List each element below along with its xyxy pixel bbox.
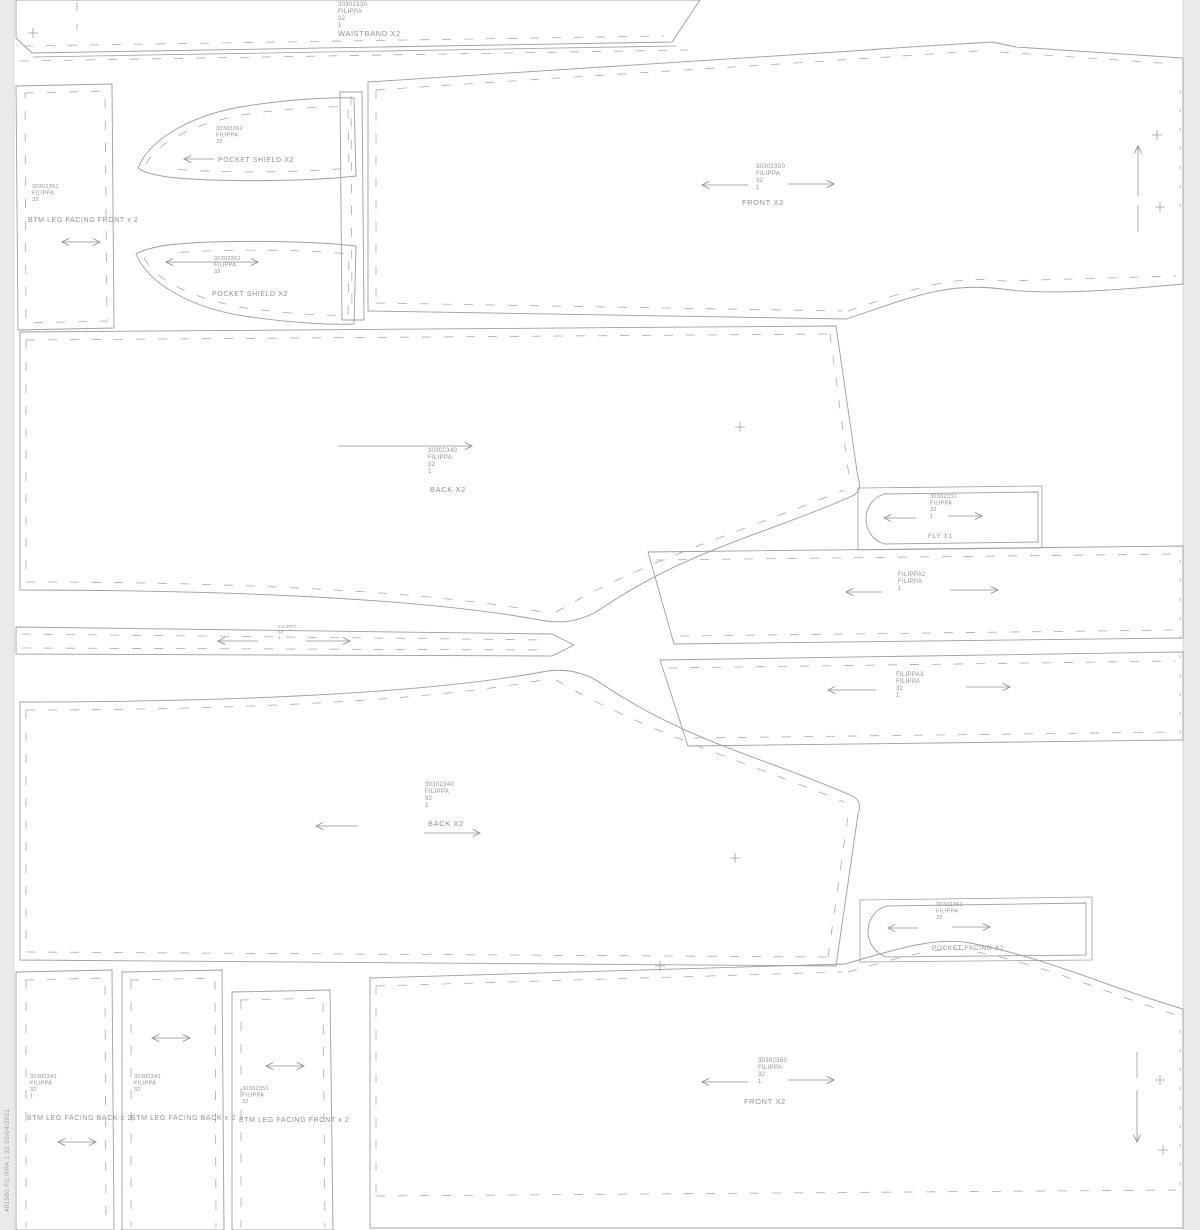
piece-name-label: FRONT X2 (742, 198, 784, 207)
marker-viewport[interactable]: 30302350FILIPPA321FRONT X230302330FILIPP… (0, 0, 1200, 1230)
piece-name-label: FLY X1 (928, 533, 953, 540)
piece-name-label: BTM LEG FACING BACK x 2 (131, 1115, 236, 1122)
pattern-marker-canvas[interactable]: 30302350FILIPPA321FRONT X230302330FILIPP… (0, 0, 1200, 1230)
marker-edge-text: 401580 FILIPPA 1 32 10/04/2021 (5, 1109, 11, 1212)
piece-name-label: POCKET SHIELD X2 (212, 291, 288, 298)
piece-name-label: BTM LEG FACING BACK x 2 (27, 1115, 132, 1122)
piece-name-label: BTM LEG FACING FRONT x 2 (28, 217, 138, 224)
piece-name-label: WAISTBAND X2 (338, 29, 401, 38)
piece-name-label: POCKET FACING X2 (932, 945, 1004, 952)
piece-name-label: BACK X2 (428, 819, 464, 828)
piece-name-label: BACK X2 (430, 485, 466, 494)
piece-name-label: FRONT X2 (744, 1097, 786, 1106)
piece-name-label: BTM LEG FACING FRONT x 2 (239, 1117, 349, 1124)
marker-sheet (14, 0, 1183, 1230)
piece-name-label: POCKET SHIELD X2 (218, 157, 294, 164)
